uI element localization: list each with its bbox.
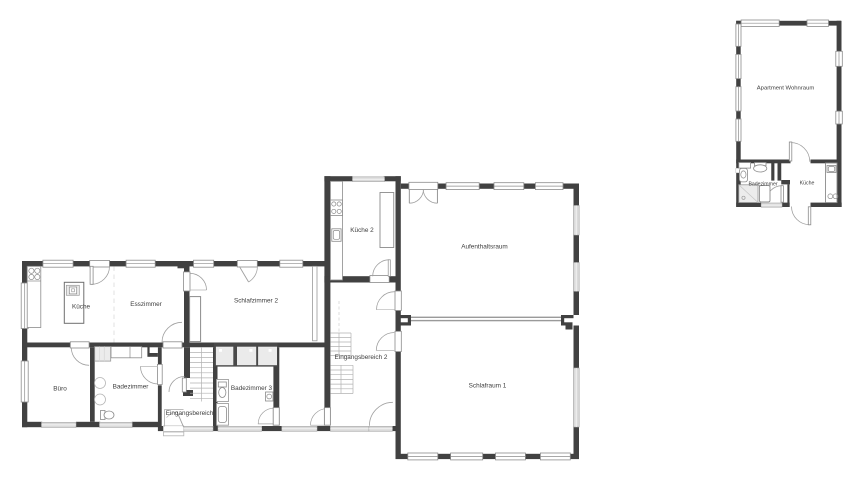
svg-text:Schlafraum 1: Schlafraum 1 — [469, 383, 507, 390]
svg-text:Schlafzimmer 2: Schlafzimmer 2 — [234, 298, 278, 305]
svg-text:Badezimmer: Badezimmer — [113, 384, 150, 391]
svg-text:Küche 2: Küche 2 — [350, 227, 374, 234]
svg-text:Badezimmer: Badezimmer — [748, 182, 777, 188]
svg-text:Eingangsbereich 2: Eingangsbereich 2 — [335, 354, 388, 361]
svg-text:Badezimmer 3: Badezimmer 3 — [231, 385, 273, 392]
svg-text:Küche: Küche — [72, 304, 91, 311]
svg-text:Aufenthaltsraum: Aufenthaltsraum — [461, 244, 508, 251]
svg-text:Esszimmer: Esszimmer — [130, 301, 162, 308]
svg-text:Apartment Wohnraum: Apartment Wohnraum — [757, 86, 815, 92]
svg-text:Büro: Büro — [53, 386, 67, 393]
svg-text:Küche: Küche — [800, 181, 815, 187]
svg-text:Eingangsbereich: Eingangsbereich — [166, 410, 214, 417]
